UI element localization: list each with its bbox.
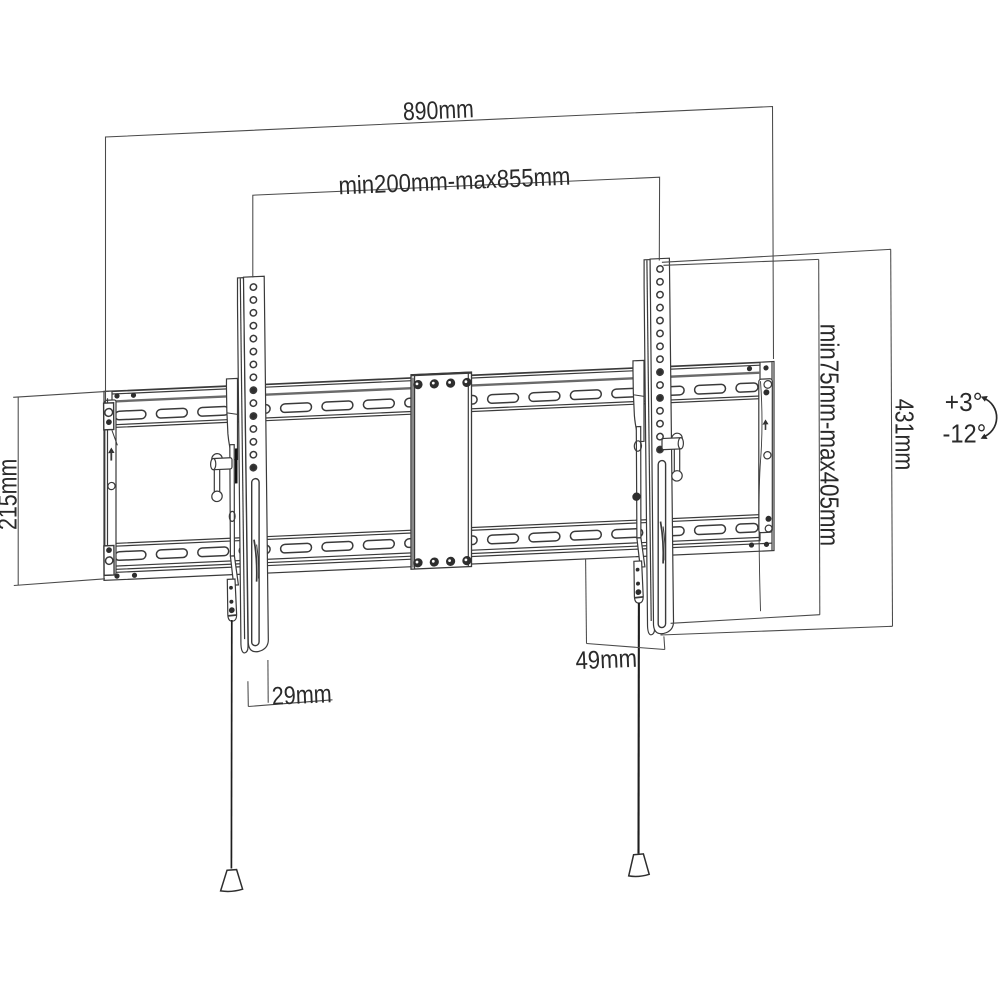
- svg-text:49mm: 49mm: [575, 645, 638, 676]
- svg-text:890mm: 890mm: [402, 95, 474, 126]
- svg-text:min75mm-max405mm: min75mm-max405mm: [815, 324, 843, 547]
- svg-text:215mm: 215mm: [0, 459, 23, 530]
- svg-text:min200mm-max855mm: min200mm-max855mm: [338, 163, 571, 201]
- svg-text:29mm: 29mm: [271, 680, 332, 710]
- svg-text:-12°: -12°: [943, 421, 987, 449]
- svg-text:+3°: +3°: [945, 389, 983, 417]
- svg-text:431mm: 431mm: [890, 399, 918, 471]
